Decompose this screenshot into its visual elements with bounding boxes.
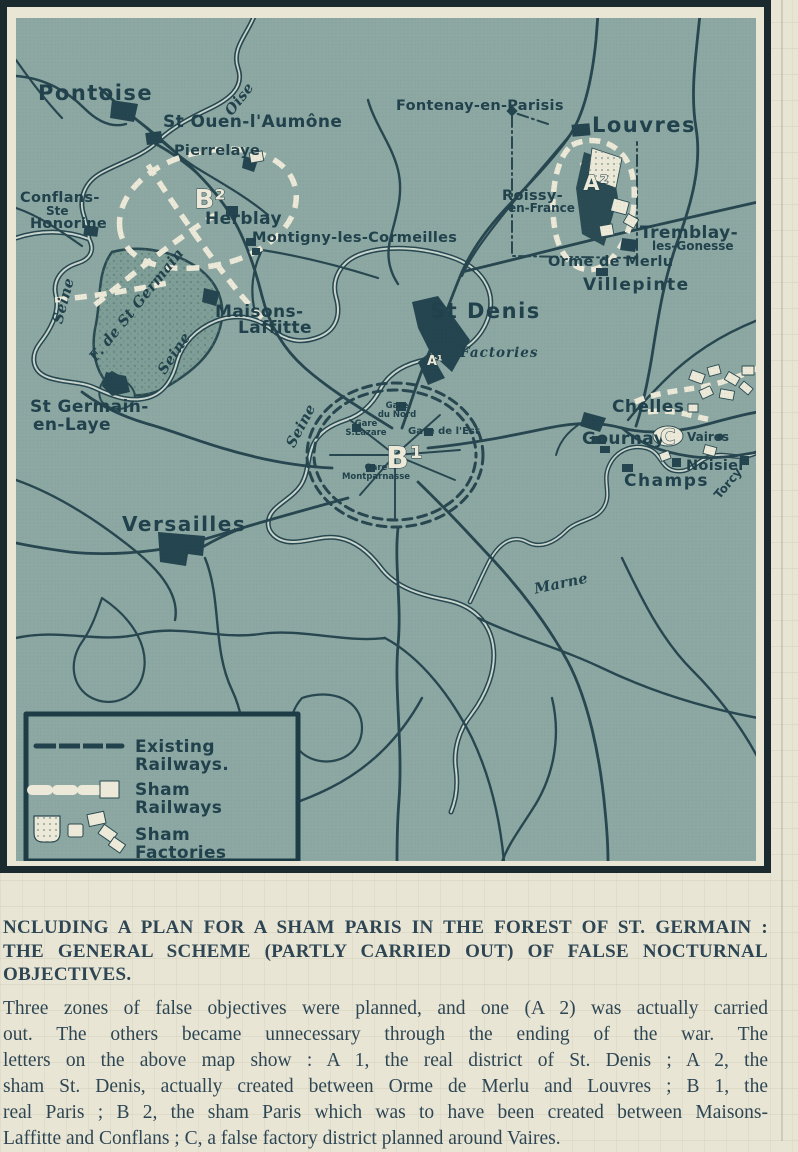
place-label-villepinte: Villepinte: [583, 275, 690, 295]
svg-text:Railways: Railways: [135, 798, 222, 818]
svg-text:Existing: Existing: [135, 737, 215, 757]
place-label-fontenay: Fontenay-en-Parisis: [396, 98, 564, 114]
legend: Existing Railways. Sham Railways Sham Fa…: [26, 714, 298, 863]
place-label-st-germain-2: en-Laye: [33, 415, 111, 435]
place-label-herblay: Herblay: [205, 209, 282, 229]
caption-body: Three zones of false objectives were pla…: [3, 996, 768, 1152]
caption-body-line lastline: Laffitte and Conflans ; C, a false facto…: [3, 1126, 768, 1152]
place-label-st-germain-1: St Germain-: [30, 397, 149, 417]
station-label-gare-de-l-est: Gare de l'Est: [408, 426, 480, 437]
caption-body-line: Three zones of false objectives were pla…: [3, 996, 768, 1022]
station-label-gare-st-lazare-2: S.Lazare: [345, 428, 386, 438]
caption: NCLUDING A PLAN FOR A SHAM PARIS IN THE …: [3, 916, 768, 1152]
caption-body-line: real Paris ; B 2, the sham Paris which w…: [3, 1100, 768, 1126]
caption-headline: NCLUDING A PLAN FOR A SHAM PARIS IN THE …: [3, 916, 768, 987]
caption-body-line: sham St. Denis, actually created between…: [3, 1074, 768, 1100]
place-label-roissy-2: en-France: [508, 201, 575, 215]
place-label-chelles: Chelles: [612, 397, 684, 417]
caption-body-line: letters on the above map show : A 1, the…: [3, 1048, 768, 1074]
place-label-gournay: Gournay: [582, 429, 665, 449]
station-label-gare-montparnasse-2: Montparnasse: [342, 472, 410, 482]
svg-text:Factories: Factories: [135, 843, 226, 863]
zone-letter-c: C: [660, 425, 675, 449]
sham-paris-map: Oise Pontoise St Ouen-l'Aumône Pierrelay…: [0, 0, 798, 880]
place-label-pierrelaye: Pierrelaye: [174, 143, 260, 159]
zone-letter-a1: A¹: [427, 354, 443, 369]
zone-letter-b1: B¹: [386, 441, 424, 476]
place-label-tremblay-2: les-Gonesse: [652, 239, 734, 253]
svg-text:Railways.: Railways.: [135, 755, 229, 775]
page: Oise Pontoise St Ouen-l'Aumône Pierrelay…: [0, 0, 798, 1141]
caption-body-line: out. The others became unnecessary throu…: [3, 1022, 768, 1048]
place-label-champs: Champs: [624, 471, 709, 491]
zone-letter-a2: A²: [583, 171, 608, 195]
place-label-st-denis: St Denis: [430, 299, 541, 323]
page-crease: [781, 0, 783, 1141]
place-label-orme: Orme de Merlu: [548, 254, 673, 270]
station-label-gare-du-nord-2: du Nord: [378, 410, 416, 420]
place-label-louvres: Louvres: [592, 113, 696, 137]
place-label-maisons-2: Laffitte: [238, 318, 312, 338]
place-label-conflans-3: Honorine: [30, 216, 107, 232]
place-label-pontoise: Pontoise: [38, 81, 153, 105]
place-label-st-ouen: St Ouen-l'Aumône: [163, 112, 342, 132]
label-factories: Factories: [459, 345, 538, 361]
place-label-montigny: Montigny-les-Cormeilles: [252, 230, 457, 246]
svg-text:Sham: Sham: [135, 825, 190, 845]
caption-headline-line: THE GENERAL SCHEME (PARTLY CARRIED OUT) …: [3, 940, 768, 987]
svg-text:Sham: Sham: [135, 780, 190, 800]
place-label-vaires: Vaires: [687, 430, 729, 444]
place-label-versailles: Versailles: [122, 512, 246, 536]
caption-headline-line: NCLUDING A PLAN FOR A SHAM PARIS IN THE …: [3, 916, 768, 940]
